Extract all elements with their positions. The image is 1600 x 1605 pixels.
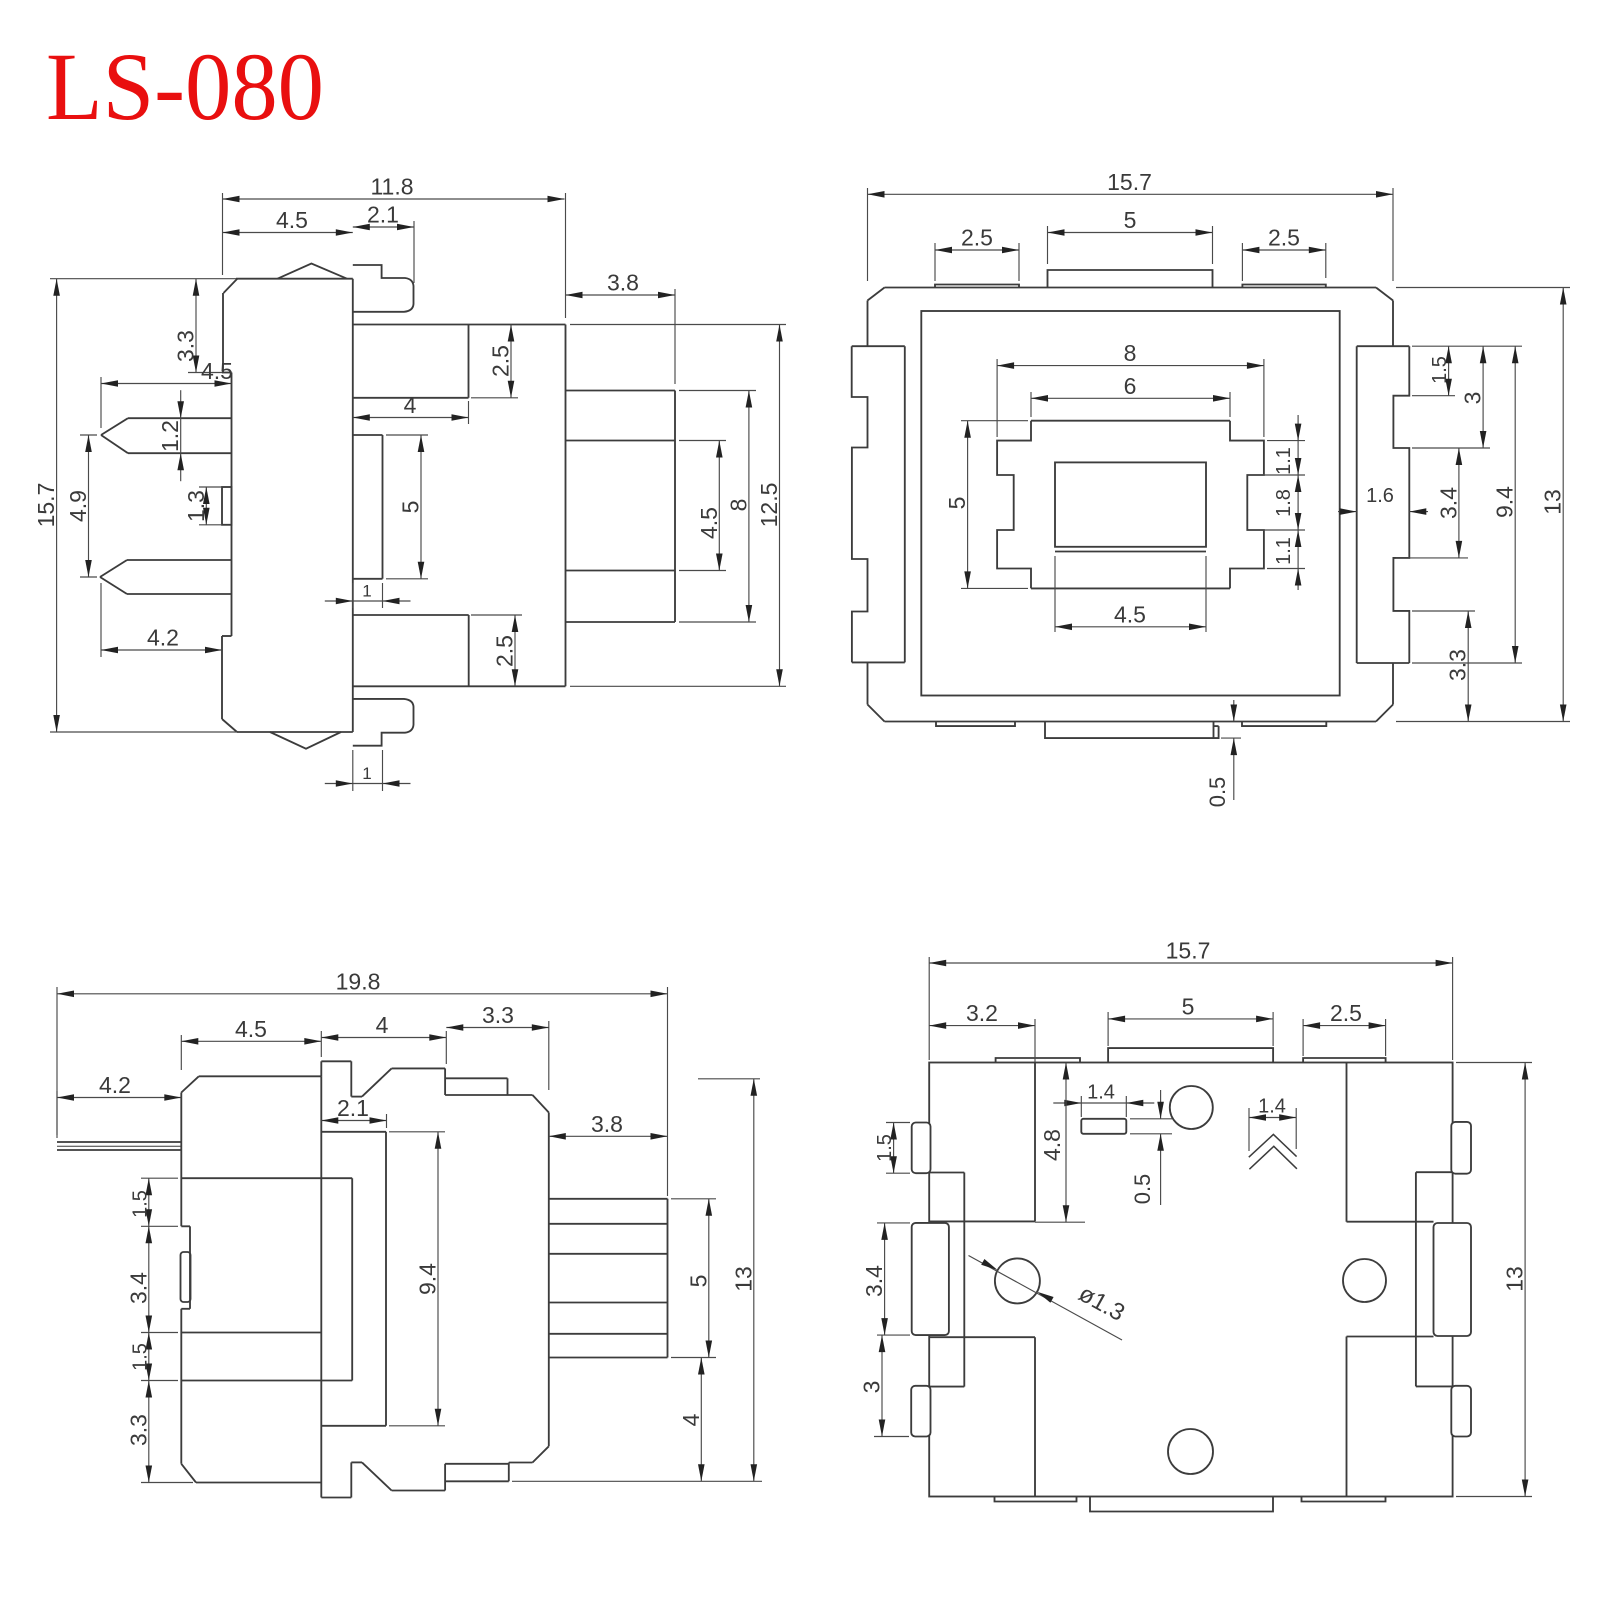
svg-text:4.5: 4.5	[276, 207, 308, 233]
svg-text:3.4: 3.4	[125, 1272, 151, 1304]
svg-text:2.5: 2.5	[488, 345, 514, 377]
svg-text:3: 3	[1460, 392, 1486, 405]
svg-text:0.5: 0.5	[1205, 777, 1230, 808]
svg-text:19.8: 19.8	[336, 968, 381, 994]
svg-text:3.3: 3.3	[1445, 649, 1471, 681]
svg-text:2.5: 2.5	[961, 225, 993, 251]
svg-text:1.4: 1.4	[1258, 1096, 1286, 1118]
svg-text:15.7: 15.7	[33, 483, 59, 528]
svg-text:13: 13	[1540, 489, 1566, 515]
svg-text:1.5: 1.5	[874, 1134, 896, 1162]
svg-text:2.5: 2.5	[1330, 1000, 1362, 1026]
svg-text:3.8: 3.8	[591, 1111, 623, 1137]
svg-text:4.9: 4.9	[65, 490, 91, 522]
svg-text:4.8: 4.8	[1039, 1129, 1065, 1161]
svg-text:13: 13	[1502, 1266, 1528, 1292]
svg-text:1.5: 1.5	[1429, 356, 1451, 384]
svg-text:2.1: 2.1	[337, 1095, 369, 1121]
svg-text:4.5: 4.5	[235, 1016, 267, 1042]
svg-text:4: 4	[376, 1012, 389, 1038]
svg-text:1: 1	[362, 582, 371, 601]
svg-text:0.5: 0.5	[1130, 1174, 1155, 1205]
svg-text:5: 5	[1182, 993, 1195, 1019]
svg-text:3.3: 3.3	[482, 1002, 514, 1028]
svg-text:3.2: 3.2	[966, 1000, 998, 1026]
svg-text:5: 5	[1124, 207, 1137, 233]
svg-text:12.5: 12.5	[756, 483, 782, 528]
svg-text:3.8: 3.8	[607, 270, 639, 296]
svg-text:1.5: 1.5	[129, 1343, 151, 1371]
svg-text:2.1: 2.1	[367, 202, 399, 228]
svg-text:1: 1	[362, 764, 371, 783]
svg-text:4.5: 4.5	[696, 507, 722, 539]
svg-text:15.7: 15.7	[1107, 169, 1152, 195]
svg-text:6: 6	[1124, 373, 1137, 399]
svg-text:2.5: 2.5	[1268, 225, 1300, 251]
svg-text:1.1: 1.1	[1273, 537, 1295, 565]
svg-text:4.5: 4.5	[1114, 601, 1146, 627]
svg-text:3.3: 3.3	[173, 330, 199, 362]
svg-text:1.3: 1.3	[183, 490, 209, 522]
svg-text:1.4: 1.4	[1087, 1082, 1115, 1104]
svg-text:8: 8	[1124, 340, 1137, 366]
svg-text:LS-080: LS-080	[46, 33, 324, 140]
svg-text:1.1: 1.1	[1273, 447, 1295, 475]
svg-text:8: 8	[725, 499, 751, 512]
svg-text:5: 5	[398, 501, 424, 514]
svg-text:4.2: 4.2	[99, 1072, 131, 1098]
svg-text:9.4: 9.4	[415, 1263, 441, 1295]
svg-text:5: 5	[944, 497, 970, 510]
svg-text:1.2: 1.2	[157, 420, 183, 452]
svg-text:4: 4	[678, 1413, 704, 1426]
svg-text:3.4: 3.4	[1435, 487, 1461, 519]
svg-text:1.6: 1.6	[1366, 485, 1394, 507]
svg-text:3.4: 3.4	[861, 1265, 887, 1297]
svg-text:15.7: 15.7	[1166, 938, 1211, 964]
svg-text:3: 3	[859, 1381, 885, 1394]
svg-text:9.4: 9.4	[1492, 486, 1518, 518]
svg-text:4.5: 4.5	[201, 358, 233, 384]
svg-text:1.8: 1.8	[1273, 489, 1295, 517]
svg-text:13: 13	[730, 1266, 756, 1292]
svg-text:11.8: 11.8	[370, 174, 413, 200]
svg-text:2.5: 2.5	[492, 635, 518, 667]
svg-text:4.2: 4.2	[147, 625, 179, 651]
svg-text:4: 4	[404, 392, 417, 418]
svg-text:3.3: 3.3	[125, 1414, 151, 1446]
svg-text:1.5: 1.5	[129, 1190, 151, 1218]
svg-text:5: 5	[685, 1275, 711, 1288]
